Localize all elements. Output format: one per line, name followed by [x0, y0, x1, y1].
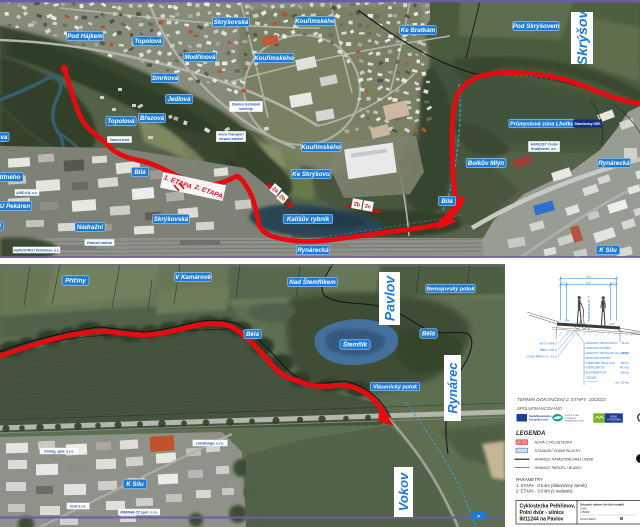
svg-text:ŠTĚRKODRŤ ŠD FR. 0-32: ŠTĚRKODRŤ ŠD FR. 0-32 — [586, 362, 615, 365]
svg-text:Bělá: Bělá — [422, 331, 436, 338]
svg-text:VOLNÁ VÝŠKA 2,5 m: VOLNÁ VÝŠKA 2,5 m — [588, 299, 591, 320]
svg-text:NOVÁ CYKLOSTEZKA: NOVÁ CYKLOSTEZKA — [535, 441, 573, 445]
svg-text:RIMOWA CZ spol. s r.o.: RIMOWA CZ spol. s r.o. — [120, 510, 157, 514]
svg-text:Kouřimského: Kouřimského — [254, 55, 294, 62]
svg-text:Kouřimského: Kouřimského — [295, 18, 335, 25]
svg-text:STÁTNÍ FOND: STÁTNÍ FOND — [565, 414, 580, 417]
svg-text:K Sílu: K Sílu — [599, 247, 617, 254]
svg-text:III/11244 na Pavlov: III/11244 na Pavlov — [520, 517, 564, 523]
svg-text:U Pekáren: U Pekáren — [0, 203, 30, 210]
svg-text:1. ETAPA - 0,6 km (dokončený z: 1. ETAPA - 0,6 km (dokončený záměr) — [516, 483, 588, 488]
svg-text:V Kamárově: V Kamárově — [175, 274, 211, 281]
svg-text:50 mm: 50 mm — [622, 342, 629, 345]
svg-text:FR. 0-63: FR. 0-63 — [620, 367, 630, 370]
svg-text:LineDesign, s.r.o.: LineDesign, s.r.o. — [196, 441, 224, 445]
svg-text:Jedlová: Jedlová — [167, 96, 191, 103]
svg-text:Topolová: Topolová — [134, 38, 162, 45]
svg-text:ova: ova — [0, 134, 8, 141]
svg-text:Cost s.r.o.: Cost s.r.o. — [70, 504, 86, 508]
svg-text:ZHUTNĚNÁ PLÁŇ: ZHUTNĚNÁ PLÁŇ — [586, 372, 606, 375]
svg-text:Ke Bratkám: Ke Bratkám — [401, 27, 436, 34]
svg-text:ADÉLKA, a.s.: ADÉLKA, a.s. — [15, 190, 38, 195]
svg-text:AGROSTROJ Pelhřimov, a.s.: AGROSTROJ Pelhřimov, a.s. — [12, 248, 59, 252]
svg-text:Rynárec: Rynárec — [445, 362, 460, 414]
svg-text:TERMÍN DOKONČENÍ 2. ETAPY: 10/: TERMÍN DOKONČENÍ 2. ETAPY: 10/2023 — [517, 396, 606, 402]
svg-text:150 mm: 150 mm — [620, 372, 629, 375]
svg-text:Spolufinancováno: Spolufinancováno — [529, 414, 552, 418]
svg-text:3,0: 3,0 — [586, 275, 591, 279]
svg-text:Vlakové nádraží: Vlakové nádraží — [87, 241, 114, 245]
svg-text:kontroly: kontroly — [239, 107, 253, 111]
svg-text:Rynárecká: Rynárecká — [297, 247, 329, 254]
svg-text:Bílá: Bílá — [441, 198, 453, 205]
svg-text:SPOLUFINANCOVÁNO: SPOLUFINANCOVÁNO — [517, 406, 563, 411]
svg-text:Cyklostezka Pelhřimov,: Cyklostezka Pelhřimov, — [520, 504, 576, 510]
svg-text:2,0%: 2,0% — [564, 320, 570, 323]
svg-text:2. ETAPA - 3,0 km (v realizaci: 2. ETAPA - 3,0 km (v realizaci) — [515, 489, 573, 494]
svg-text:K Sílu: K Sílu — [126, 481, 144, 488]
svg-text:Evropskou unií: Evropskou unií — [529, 417, 548, 421]
svg-text:Příčiny: Příčiny — [65, 278, 86, 285]
svg-text:KRYT: ASFALT: KRYT: ASFALT — [540, 342, 558, 346]
svg-text:10.04.2023: 10.04.2023 — [580, 517, 596, 521]
svg-text:PARAMETRY: PARAMETRY — [516, 477, 544, 482]
svg-text:Pod Skrýšovem: Pod Skrýšovem — [513, 23, 560, 30]
svg-text:Nad Štemflíkem: Nad Štemflíkem — [289, 278, 336, 286]
svg-text:1:5000: 1:5000 — [580, 510, 590, 514]
svg-text:DOPRAVNÍ: DOPRAVNÍ — [565, 417, 577, 420]
svg-text:Ke Skrýšovu: Ke Skrýšovu — [292, 171, 330, 178]
svg-text:min. 410 mm: min. 410 mm — [615, 381, 629, 384]
svg-text:Březová: Březová — [140, 115, 165, 122]
svg-text:Budějovice, a.s.: Budějovice, a.s. — [531, 147, 557, 151]
svg-text:SPOJOVACÍ POSTŘIK: SPOJOVACÍ POSTŘIK — [586, 347, 611, 350]
svg-text:Skrýšovská: Skrýšovská — [154, 216, 189, 223]
svg-text:STÁVAJÍCÍ VODNÍ PLOCHY: STÁVAJÍCÍ VODNÍ PLOCHY — [535, 449, 582, 453]
svg-text:Smrková: Smrková — [152, 75, 179, 82]
svg-text:Pod Hájkem: Pod Hájkem — [67, 33, 103, 40]
svg-text:HRANICE KATASTRÁLNÍHO ÚZEMÍ: HRANICE KATASTRÁLNÍHO ÚZEMÍ — [535, 457, 595, 462]
svg-text:Vokov: Vokov — [396, 472, 411, 511]
svg-text:Nádražní: Nádražní — [77, 224, 104, 231]
svg-text:Nemojovský potok: Nemojovský potok — [427, 286, 476, 292]
svg-text:2,0%: 2,0% — [609, 323, 615, 326]
svg-text:Skrýšov: Skrýšov — [574, 10, 590, 66]
svg-text:Štítného: Štítného — [0, 173, 21, 181]
svg-text:SPOJOVACÍ POSTŘIK: SPOJOVACÍ POSTŘIK — [586, 357, 611, 360]
svg-text:Bělá: Bělá — [246, 331, 260, 338]
svg-text:ASFALTOVÝ BETON ACO 11: ASFALTOVÝ BETON ACO 11 — [586, 342, 618, 345]
svg-text:Bolkův Mlýn: Bolkův Mlýn — [468, 160, 505, 167]
svg-text:Skrýšovská: Skrýšovská — [214, 19, 249, 26]
svg-text:CELKEM: CELKEM — [586, 377, 596, 380]
svg-text:é: é — [0, 224, 2, 230]
svg-text:Polní dvůr - silnice: Polní dvůr - silnice — [520, 509, 565, 516]
svg-text:HRANICE PARCEL / BUDOV: HRANICE PARCEL / BUDOV — [535, 466, 583, 470]
svg-text:Bílá: Bílá — [134, 169, 146, 176]
svg-text:Rynárecká: Rynárecká — [598, 160, 630, 167]
svg-text:60 mm: 60 mm — [622, 352, 629, 355]
svg-text:Vlásenický potok: Vlásenický potok — [373, 384, 418, 390]
svg-text:ŠTĚRKODRŤ ŠD: ŠTĚRKODRŤ ŠD — [586, 367, 605, 370]
svg-text:Stavebniny DEK: Stavebniny DEK — [574, 122, 601, 126]
svg-text:2c: 2c — [364, 203, 371, 210]
svg-text:čerpací stanice: čerpací stanice — [219, 137, 244, 141]
svg-text:Modřínová: Modřínová — [184, 54, 216, 61]
svg-text:Kalíšův rybník: Kalíšův rybník — [287, 216, 330, 223]
svg-text:INFRASTRUKTURY: INFRASTRUKTURY — [565, 420, 585, 423]
svg-text:Conteg, spol. s r.o.: Conteg, spol. s r.o. — [44, 449, 74, 453]
svg-text:150 mm: 150 mm — [620, 362, 629, 365]
svg-text:Štemflík: Štemflík — [343, 341, 368, 349]
svg-text:2,5: 2,5 — [586, 281, 591, 285]
svg-text:Pavlov: Pavlov — [382, 275, 398, 321]
svg-text:Průmyslová zóna Lhotko: Průmyslová zóna Lhotko — [510, 120, 575, 127]
svg-text:Topolová: Topolová — [107, 118, 135, 125]
svg-text:Sázava trida: Sázava trida — [110, 138, 130, 142]
svg-text:Kouřimského: Kouřimského — [301, 144, 341, 151]
svg-text:LEGENDA: LEGENDA — [516, 431, 545, 437]
